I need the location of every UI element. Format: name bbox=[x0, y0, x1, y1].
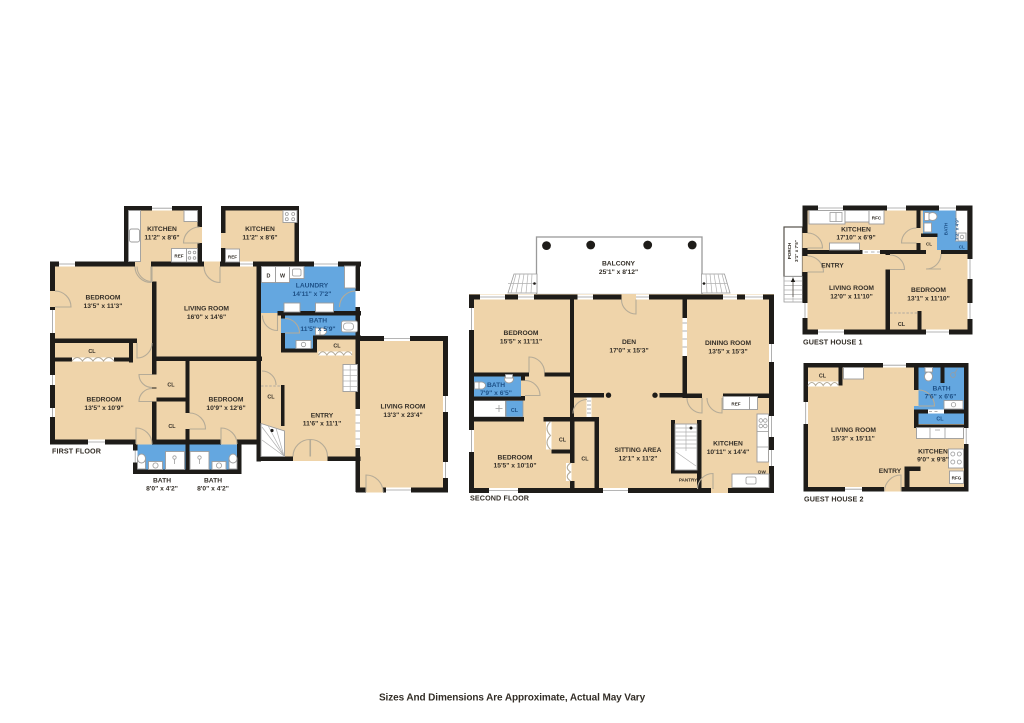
svg-text:LIVING ROOM: LIVING ROOM bbox=[831, 427, 876, 434]
svg-text:15'3" x 15'11": 15'3" x 15'11" bbox=[832, 436, 875, 443]
svg-text:15'5" x 11'11": 15'5" x 11'11" bbox=[500, 339, 542, 346]
svg-text:LIVING ROOM: LIVING ROOM bbox=[381, 404, 426, 411]
svg-text:BATH: BATH bbox=[153, 478, 171, 485]
svg-text:CL: CL bbox=[559, 438, 567, 444]
svg-text:17'10" x 6'9": 17'10" x 6'9" bbox=[836, 235, 875, 242]
svg-text:16'0" x 14'6": 16'0" x 14'6" bbox=[187, 314, 226, 321]
svg-text:CL: CL bbox=[167, 383, 175, 389]
svg-text:25'1" x 8'12": 25'1" x 8'12" bbox=[599, 269, 638, 276]
svg-text:3'1" x 7'5": 3'1" x 7'5" bbox=[794, 240, 799, 262]
svg-text:PANTRY: PANTRY bbox=[679, 478, 697, 483]
svg-text:KITCHEN: KITCHEN bbox=[918, 449, 948, 456]
svg-text:13'5" x 15'3": 13'5" x 15'3" bbox=[708, 349, 747, 356]
svg-text:11'5" x 5'9": 11'5" x 5'9" bbox=[300, 326, 335, 333]
svg-text:CL: CL bbox=[267, 395, 275, 401]
svg-text:7'2" x 4'9": 7'2" x 4'9" bbox=[955, 218, 960, 240]
svg-text:8'0" x 4'2": 8'0" x 4'2" bbox=[197, 486, 229, 493]
svg-text:BATH: BATH bbox=[309, 318, 327, 325]
svg-text:CL: CL bbox=[819, 374, 827, 380]
svg-text:KITCHEN: KITCHEN bbox=[841, 227, 871, 234]
svg-text:LIVING ROOM: LIVING ROOM bbox=[829, 285, 874, 292]
svg-text:KITCHEN: KITCHEN bbox=[245, 226, 275, 233]
svg-text:BATH: BATH bbox=[204, 478, 222, 485]
svg-text:BALCONY: BALCONY bbox=[602, 261, 636, 268]
svg-text:BEDROOM: BEDROOM bbox=[86, 295, 121, 302]
svg-text:REF: REF bbox=[174, 254, 183, 259]
svg-text:CL: CL bbox=[926, 242, 932, 247]
svg-text:13'5" x 11'3": 13'5" x 11'3" bbox=[84, 303, 123, 310]
svg-text:CL: CL bbox=[898, 322, 906, 328]
svg-text:RFC: RFC bbox=[872, 216, 882, 221]
svg-text:CL: CL bbox=[511, 408, 519, 414]
svg-text:Sizes And Dimensions Are Appro: Sizes And Dimensions Are Approximate, Ac… bbox=[379, 693, 646, 704]
svg-text:PORCH: PORCH bbox=[787, 242, 792, 259]
svg-text:GUEST HOUSE 1: GUEST HOUSE 1 bbox=[803, 338, 863, 347]
svg-text:BATH: BATH bbox=[932, 386, 950, 393]
svg-text:CL: CL bbox=[168, 424, 176, 430]
svg-text:ENTRY: ENTRY bbox=[311, 413, 334, 420]
svg-text:12'1" x 11'2": 12'1" x 11'2" bbox=[619, 456, 658, 463]
svg-text:DINING ROOM: DINING ROOM bbox=[705, 340, 751, 347]
svg-text:13'3" x 23'4": 13'3" x 23'4" bbox=[383, 412, 422, 419]
svg-text:KITCHEN: KITCHEN bbox=[147, 226, 177, 233]
svg-text:BEDROOM: BEDROOM bbox=[87, 397, 122, 404]
svg-text:13'1" x 11'10": 13'1" x 11'10" bbox=[907, 296, 950, 303]
svg-text:SITTING AREA: SITTING AREA bbox=[615, 447, 662, 454]
svg-text:12'0" x 11'10": 12'0" x 11'10" bbox=[830, 294, 873, 301]
svg-text:BEDROOM: BEDROOM bbox=[504, 330, 539, 337]
svg-text:SECOND FLOOR: SECOND FLOOR bbox=[470, 494, 530, 503]
svg-text:7'6" x 6'6": 7'6" x 6'6" bbox=[925, 394, 957, 401]
svg-text:CL: CL bbox=[88, 349, 96, 355]
svg-text:FIRST FLOOR: FIRST FLOOR bbox=[52, 447, 102, 456]
svg-text:9'0" x 9'8": 9'0" x 9'8" bbox=[917, 457, 949, 464]
svg-text:CL: CL bbox=[959, 245, 965, 250]
svg-text:ENTRY: ENTRY bbox=[879, 468, 902, 475]
svg-text:REF: REF bbox=[731, 402, 740, 407]
svg-text:7'9" x 6'5": 7'9" x 6'5" bbox=[480, 390, 512, 397]
svg-text:8'0" x 4'2": 8'0" x 4'2" bbox=[146, 486, 178, 493]
svg-text:10'9" x 12'6": 10'9" x 12'6" bbox=[206, 405, 245, 412]
svg-text:15'5" x 10'10": 15'5" x 10'10" bbox=[494, 463, 537, 470]
svg-text:BATH: BATH bbox=[944, 222, 949, 235]
svg-text:KITCHEN: KITCHEN bbox=[713, 441, 743, 448]
svg-text:LIVING ROOM: LIVING ROOM bbox=[184, 306, 229, 313]
svg-text:BEDROOM: BEDROOM bbox=[209, 397, 244, 404]
svg-text:10'11" x 14'4": 10'11" x 14'4" bbox=[707, 449, 750, 456]
svg-text:CL: CL bbox=[581, 457, 589, 463]
svg-text:11'6" x 11'1": 11'6" x 11'1" bbox=[303, 421, 342, 428]
svg-text:14'11" x 7'2": 14'11" x 7'2" bbox=[293, 291, 332, 298]
svg-text:REF: REF bbox=[228, 255, 237, 260]
svg-text:11'2" x 8'6": 11'2" x 8'6" bbox=[242, 235, 277, 242]
svg-text:CL: CL bbox=[936, 417, 944, 423]
svg-text:LAUNDRY: LAUNDRY bbox=[296, 283, 329, 290]
svg-text:RFG: RFG bbox=[952, 476, 962, 481]
svg-text:D: D bbox=[267, 274, 271, 280]
svg-text:BEDROOM: BEDROOM bbox=[498, 455, 533, 462]
svg-text:13'5" x 10'9": 13'5" x 10'9" bbox=[84, 405, 123, 412]
svg-text:GUEST HOUSE 2: GUEST HOUSE 2 bbox=[804, 495, 864, 504]
svg-text:DEN: DEN bbox=[622, 339, 636, 346]
svg-text:17'0" x 15'3": 17'0" x 15'3" bbox=[609, 348, 648, 355]
svg-text:CL: CL bbox=[333, 344, 341, 350]
svg-text:11'2" x 8'6": 11'2" x 8'6" bbox=[144, 235, 179, 242]
svg-text:BEDROOM: BEDROOM bbox=[911, 287, 946, 294]
svg-text:ENTRY: ENTRY bbox=[821, 263, 844, 270]
svg-text:BATH: BATH bbox=[487, 382, 505, 389]
